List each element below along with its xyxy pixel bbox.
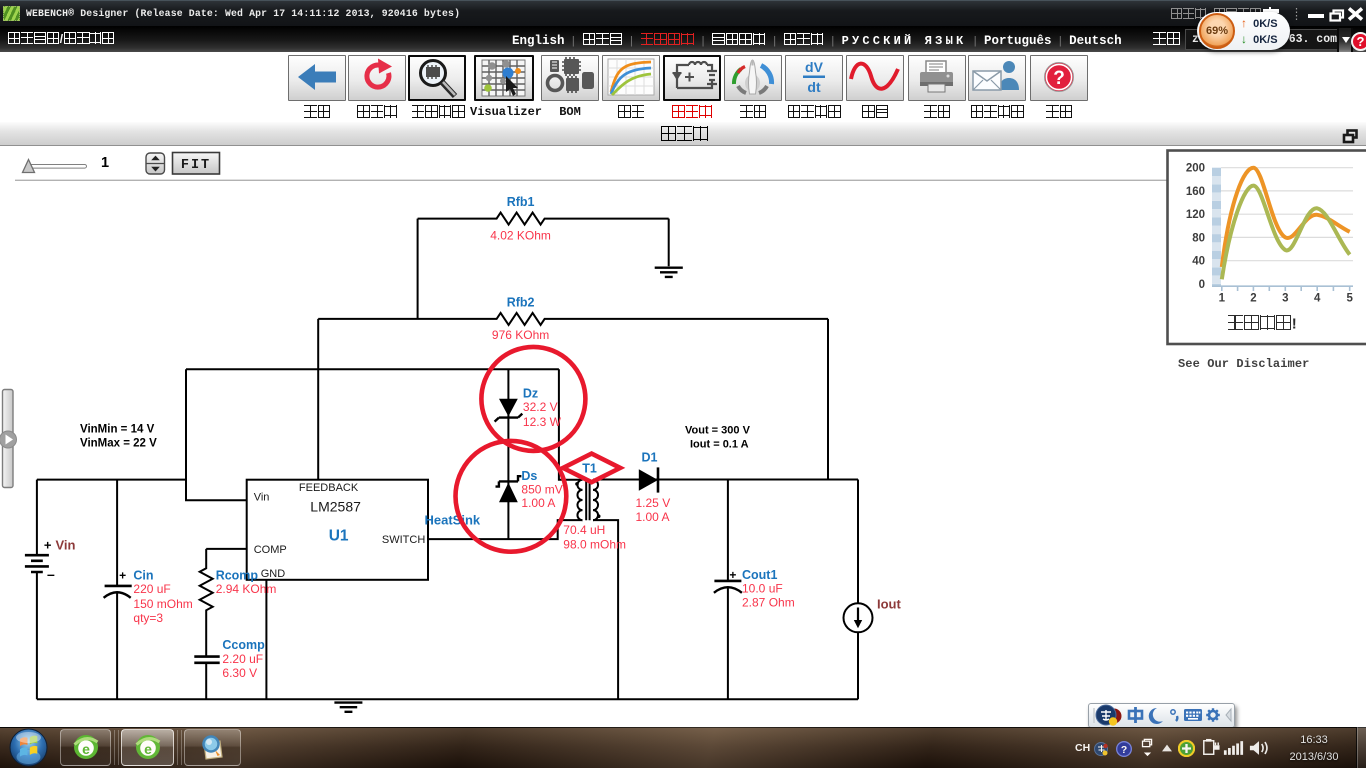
- svg-text:200: 200: [1186, 163, 1205, 175]
- svg-text:FEEDBACK: FEEDBACK: [299, 482, 359, 494]
- svg-text:1.00 A: 1.00 A: [521, 496, 555, 510]
- svg-text:VinMax = 22 V: VinMax = 22 V: [80, 438, 157, 450]
- svg-text:COMP: COMP: [254, 544, 287, 556]
- svg-text:LM2587: LM2587: [310, 499, 361, 515]
- svg-text:U1: U1: [329, 528, 349, 545]
- svg-text:10.0 uF: 10.0 uF: [742, 582, 783, 596]
- svg-text:HeatSink: HeatSink: [425, 513, 481, 528]
- svg-text:Vout = 300 V: Vout = 300 V: [685, 425, 751, 437]
- svg-text:Rcomp: Rcomp: [216, 569, 259, 583]
- svg-text:6.30 V: 6.30 V: [222, 666, 257, 680]
- svg-text:GND: GND: [261, 568, 286, 580]
- svg-text:e: e: [144, 741, 152, 757]
- svg-text:2: 2: [1250, 293, 1256, 305]
- svg-text:–: –: [47, 566, 55, 582]
- svg-text:+: +: [44, 538, 52, 553]
- svg-text:32.2 V: 32.2 V: [523, 400, 558, 414]
- svg-text:Iout = 0.1 A: Iout = 0.1 A: [690, 439, 749, 451]
- svg-text:Cout1: Cout1: [742, 568, 777, 582]
- svg-text:Ccomp: Ccomp: [222, 638, 265, 652]
- svg-text:?: ?: [1121, 745, 1127, 756]
- svg-text:2.20 uF: 2.20 uF: [222, 652, 263, 666]
- svg-text:qty=3: qty=3: [133, 611, 163, 625]
- svg-text:Iout: Iout: [877, 597, 901, 612]
- svg-text:Vin: Vin: [56, 538, 76, 553]
- svg-text:See Our Disclaimer: See Our Disclaimer: [1178, 357, 1309, 371]
- svg-text:1: 1: [101, 155, 109, 171]
- svg-text:Vin: Vin: [254, 492, 270, 504]
- svg-text:220 uF: 220 uF: [133, 582, 170, 596]
- svg-text:3: 3: [1282, 293, 1288, 305]
- svg-text:Rfb2: Rfb2: [507, 296, 535, 310]
- svg-text:850 mV: 850 mV: [521, 482, 562, 496]
- svg-text:e: e: [82, 741, 90, 757]
- svg-text:70.4 uH: 70.4 uH: [563, 523, 605, 537]
- svg-text:0: 0: [1199, 279, 1205, 291]
- svg-text:+: +: [729, 568, 736, 582]
- svg-text:120: 120: [1186, 209, 1205, 221]
- svg-text:Dz: Dz: [523, 387, 538, 401]
- svg-text:Cin: Cin: [133, 569, 153, 583]
- svg-text:4.02 KOhm: 4.02 KOhm: [490, 229, 551, 243]
- svg-text:1: 1: [1219, 293, 1226, 305]
- svg-text:VinMin = 14 V: VinMin = 14 V: [80, 424, 155, 436]
- svg-text:976 KOhm: 976 KOhm: [492, 328, 549, 342]
- svg-text:FIT: FIT: [181, 158, 211, 173]
- svg-text:80: 80: [1192, 232, 1205, 244]
- svg-text:D1: D1: [642, 451, 658, 465]
- svg-text:150 mOhm: 150 mOhm: [133, 597, 192, 611]
- svg-text:T1: T1: [582, 462, 597, 476]
- svg-text:160: 160: [1186, 186, 1205, 198]
- svg-text:Ds: Ds: [521, 469, 537, 483]
- svg-text:SWITCH: SWITCH: [382, 534, 425, 546]
- svg-text:2.87 Ohm: 2.87 Ohm: [742, 596, 795, 610]
- svg-text:1.25 V: 1.25 V: [636, 496, 671, 510]
- svg-text:40: 40: [1192, 256, 1205, 268]
- svg-text:4: 4: [1314, 293, 1321, 305]
- svg-text:12.3 W: 12.3 W: [523, 415, 562, 429]
- svg-text:98.0 mOhm: 98.0 mOhm: [563, 538, 626, 552]
- svg-text:+: +: [119, 568, 126, 582]
- svg-text:Rfb1: Rfb1: [507, 195, 535, 209]
- svg-text:2.94 KOhm: 2.94 KOhm: [216, 582, 277, 596]
- svg-text:5: 5: [1346, 293, 1353, 305]
- svg-text:1.00 A: 1.00 A: [636, 510, 670, 524]
